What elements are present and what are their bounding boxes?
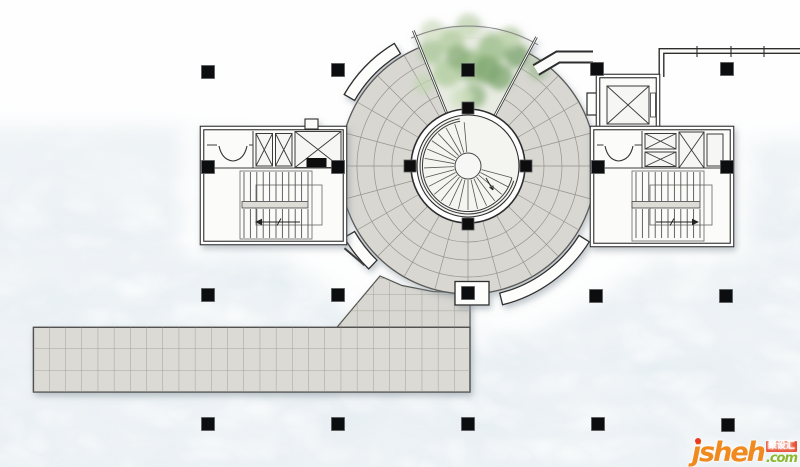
column-marker: [202, 418, 215, 431]
ring-column-marker: [520, 160, 532, 172]
right-stair-core: [592, 128, 732, 245]
floor-plan-canvas: [0, 0, 800, 467]
column-marker: [202, 66, 215, 79]
column-marker: [720, 290, 733, 303]
elevator-block: [587, 76, 658, 133]
column-marker: [592, 161, 605, 174]
column-marker: [462, 287, 475, 300]
column-marker: [332, 161, 345, 174]
column-marker: [202, 161, 215, 174]
column-marker: [332, 289, 345, 302]
watermark-j-dot: [695, 438, 701, 444]
watermark-brand: jsheh: [692, 439, 764, 466]
floor-plan-image: jsheh 聚设汇 .com: [0, 0, 800, 467]
tree-canopy-blob: [473, 56, 501, 84]
column-marker: [332, 64, 345, 77]
stair-landing: [242, 202, 308, 209]
column-marker: [591, 63, 604, 76]
column-marker: [202, 289, 215, 302]
elevator-counterweight: [307, 158, 327, 167]
left-stair-core: [202, 119, 345, 243]
watermark-logo: jsheh 聚设汇 .com: [692, 439, 797, 466]
shaft-boxes: [256, 132, 341, 168]
column-marker: [462, 64, 475, 77]
ring-column-marker: [462, 218, 474, 230]
column-marker: [590, 290, 603, 303]
column-marker: [722, 419, 735, 432]
stair-landing: [632, 202, 700, 209]
elevator-door-slot: [651, 93, 656, 117]
column-marker: [332, 418, 345, 431]
watermark-suffix: .com: [766, 452, 797, 465]
pier-paving-grid: [33, 327, 470, 392]
column-marker: [721, 161, 734, 174]
column-marker: [592, 418, 605, 431]
spiral-stair-hub: [455, 153, 481, 179]
column-marker: [462, 418, 475, 431]
ring-column-marker: [404, 160, 416, 172]
column-marker: [721, 63, 734, 76]
roof-stub: [305, 119, 318, 129]
ring-column-marker: [462, 102, 474, 114]
